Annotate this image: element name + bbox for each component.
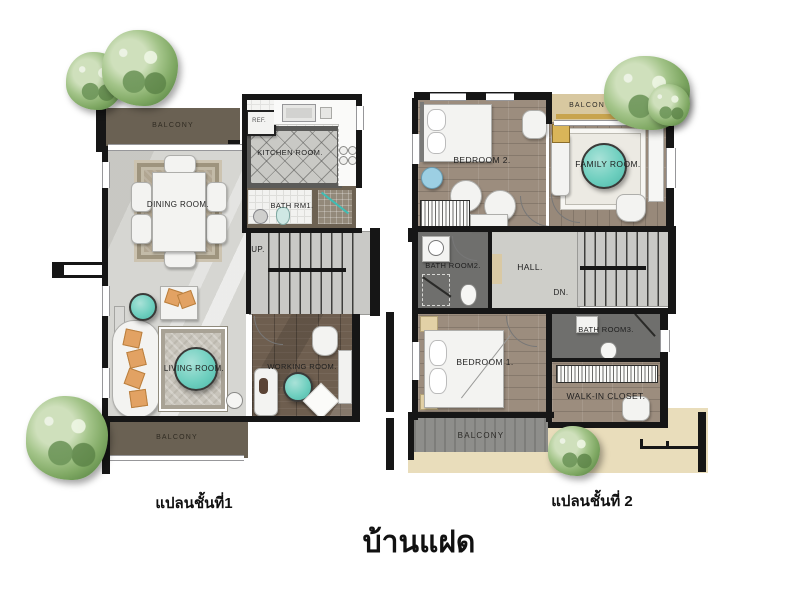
room-label-bath1: BATH RM1. (262, 202, 322, 211)
pillow-icon (427, 109, 446, 131)
kitchen-sink (282, 104, 316, 122)
tree-icon (648, 84, 690, 126)
washbasin-icon (253, 209, 268, 224)
room-label-balcony-bottom-f2: BALCONY (414, 431, 548, 440)
fence-wall (386, 418, 394, 470)
dining-chair (206, 214, 227, 244)
tree-icon (26, 396, 108, 480)
gold-table (552, 124, 570, 143)
room-label-kitchen: KITCHEN ROOM. (244, 149, 336, 158)
room-label-hall: HALL. (500, 263, 560, 273)
window (356, 106, 364, 130)
window (108, 144, 242, 151)
wall (408, 228, 416, 242)
room-label-closet: WALK-IN CLOSET. (548, 392, 664, 402)
bay-window-line (60, 275, 104, 278)
wall (414, 308, 676, 314)
sofa-cushion (129, 389, 148, 408)
toilet-icon (460, 284, 477, 306)
blue-side-table (421, 167, 443, 189)
wall (370, 228, 380, 316)
window (102, 286, 110, 316)
sofa-cushion (122, 328, 142, 348)
room-label-balcony-bottom-f1: BALCONY (106, 434, 248, 442)
counter-item (320, 107, 332, 119)
fence-tick (640, 439, 643, 449)
wall (414, 412, 554, 418)
room-label-balcony-top-f1: BALCONY (106, 122, 240, 130)
fence-line (640, 446, 700, 449)
window (430, 93, 466, 101)
dining-chair (131, 214, 152, 244)
wall (660, 308, 668, 428)
fence-wall (386, 312, 394, 412)
wall (552, 358, 664, 362)
ref-label: REF. (246, 118, 272, 125)
window (486, 93, 514, 101)
room-label-dining: DINING ROOM. (134, 200, 222, 209)
room-label-living: LIVING ROOM. (150, 364, 238, 373)
stairs-down-label: DN. (548, 288, 574, 297)
kitchen-counter-right (338, 124, 357, 186)
wall (242, 94, 362, 100)
armchair (616, 194, 646, 222)
dining-table (152, 172, 206, 252)
floor2-caption: แปลนชั้นที่ 2 (492, 494, 692, 509)
floor-plan-sheet: BALCONY BALCONY REF. KITCHEN ROOM. BATH … (0, 0, 800, 600)
pillow-icon (429, 368, 447, 394)
tree-icon (548, 426, 600, 476)
bench-item (259, 378, 268, 394)
tree-icon (102, 30, 178, 106)
floor1-caption: แปลนชั้นที่1 (94, 496, 294, 511)
room-label-working: WORKING ROOM. (252, 363, 352, 372)
pillow-icon (427, 132, 446, 154)
stairs-up-label: UP. (246, 245, 270, 254)
wardrobe (420, 200, 470, 229)
fence-tick (666, 441, 669, 449)
stair-treads (268, 232, 360, 314)
side-table (129, 293, 157, 321)
barrel-chair (522, 110, 547, 139)
window (102, 368, 110, 398)
room-label-bedroom1: BEDROOM 1. (424, 358, 546, 368)
wall (352, 314, 360, 422)
window (666, 148, 676, 188)
window (102, 162, 110, 188)
room-label-family: FAMILY ROOM. (549, 160, 667, 170)
room-label-bath2: BATH ROOM2. (416, 262, 490, 271)
stove-burner-icon (339, 146, 348, 155)
window (554, 120, 626, 126)
clothes-rack (556, 365, 658, 383)
room-label-bath3: BATH ROOM3. (552, 326, 660, 335)
desk (338, 350, 352, 404)
stair-rail (580, 266, 646, 270)
page-title: บ้านแฝด (269, 528, 569, 558)
barrel-chair (312, 326, 338, 356)
window (412, 342, 420, 380)
wall (96, 104, 106, 152)
wall (102, 416, 360, 422)
floor-lamp-icon (226, 392, 243, 409)
wall (668, 226, 676, 312)
stove-burner-icon (339, 156, 348, 165)
headboard (420, 102, 424, 162)
room-label-bedroom2: BEDROOM 2. (418, 156, 546, 166)
bay-window-line (60, 262, 104, 265)
terrace (408, 452, 553, 473)
wall (414, 226, 676, 232)
stair-rail (268, 268, 346, 272)
wall (242, 228, 362, 233)
washer-drum-icon (428, 240, 444, 256)
window (660, 330, 670, 352)
fence-wall (698, 412, 706, 472)
window (110, 455, 244, 461)
